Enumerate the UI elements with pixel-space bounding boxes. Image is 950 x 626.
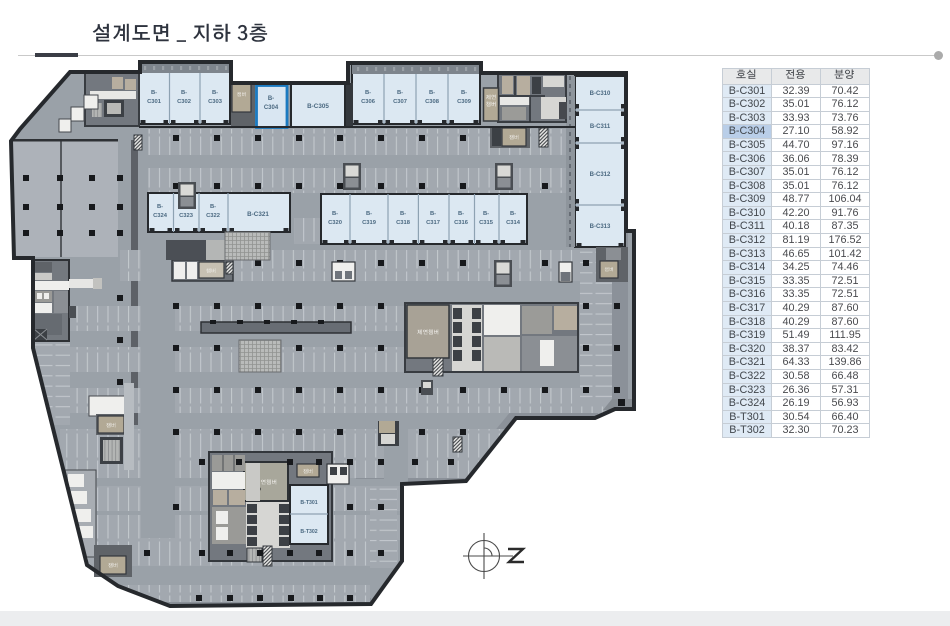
svg-text:B-: B- [151,90,157,96]
svg-text:B-C313: B-C313 [590,224,611,230]
svg-text:B-T301: B-T301 [300,500,317,506]
svg-text:B-T302: B-T302 [300,529,317,535]
svg-text:B-: B- [430,211,436,217]
svg-text:B-: B- [429,90,435,96]
svg-text:B-: B- [332,211,338,217]
svg-text:B-C305: B-C305 [307,103,329,110]
svg-text:B-: B- [397,90,403,96]
svg-text:C315: C315 [479,220,494,226]
svg-text:B-: B- [461,90,467,96]
svg-text:B-C312: B-C312 [590,172,611,178]
svg-text:C324: C324 [153,213,168,219]
svg-text:B-: B- [157,204,163,210]
svg-text:C320: C320 [328,220,342,226]
svg-text:C323: C323 [179,213,194,219]
svg-text:B-: B- [212,90,218,96]
svg-text:C302: C302 [177,99,191,105]
svg-text:B-: B- [365,90,371,96]
svg-text:B-: B- [268,96,274,102]
svg-text:C301: C301 [147,99,162,105]
svg-text:B-: B- [210,204,216,210]
svg-text:B-: B- [366,211,372,217]
svg-text:C308: C308 [425,99,440,105]
svg-text:B-C321: B-C321 [247,211,269,218]
svg-text:C309: C309 [457,99,472,105]
svg-text:C317: C317 [426,220,440,226]
svg-text:B-: B- [458,211,464,217]
svg-text:C316: C316 [454,220,469,226]
svg-text:C306: C306 [361,99,376,105]
svg-text:B-C311: B-C311 [590,124,611,130]
svg-text:C303: C303 [208,99,223,105]
svg-text:C319: C319 [362,220,377,226]
svg-text:B-: B- [181,90,187,96]
svg-text:C318: C318 [396,220,411,226]
svg-text:B-: B- [483,211,489,217]
svg-text:C314: C314 [506,220,521,226]
svg-text:B-: B- [510,211,516,217]
svg-text:B-C310: B-C310 [590,91,611,97]
svg-text:C322: C322 [206,213,220,219]
svg-text:C307: C307 [393,99,407,105]
svg-text:C304: C304 [264,105,279,111]
svg-text:B-: B- [400,211,406,217]
